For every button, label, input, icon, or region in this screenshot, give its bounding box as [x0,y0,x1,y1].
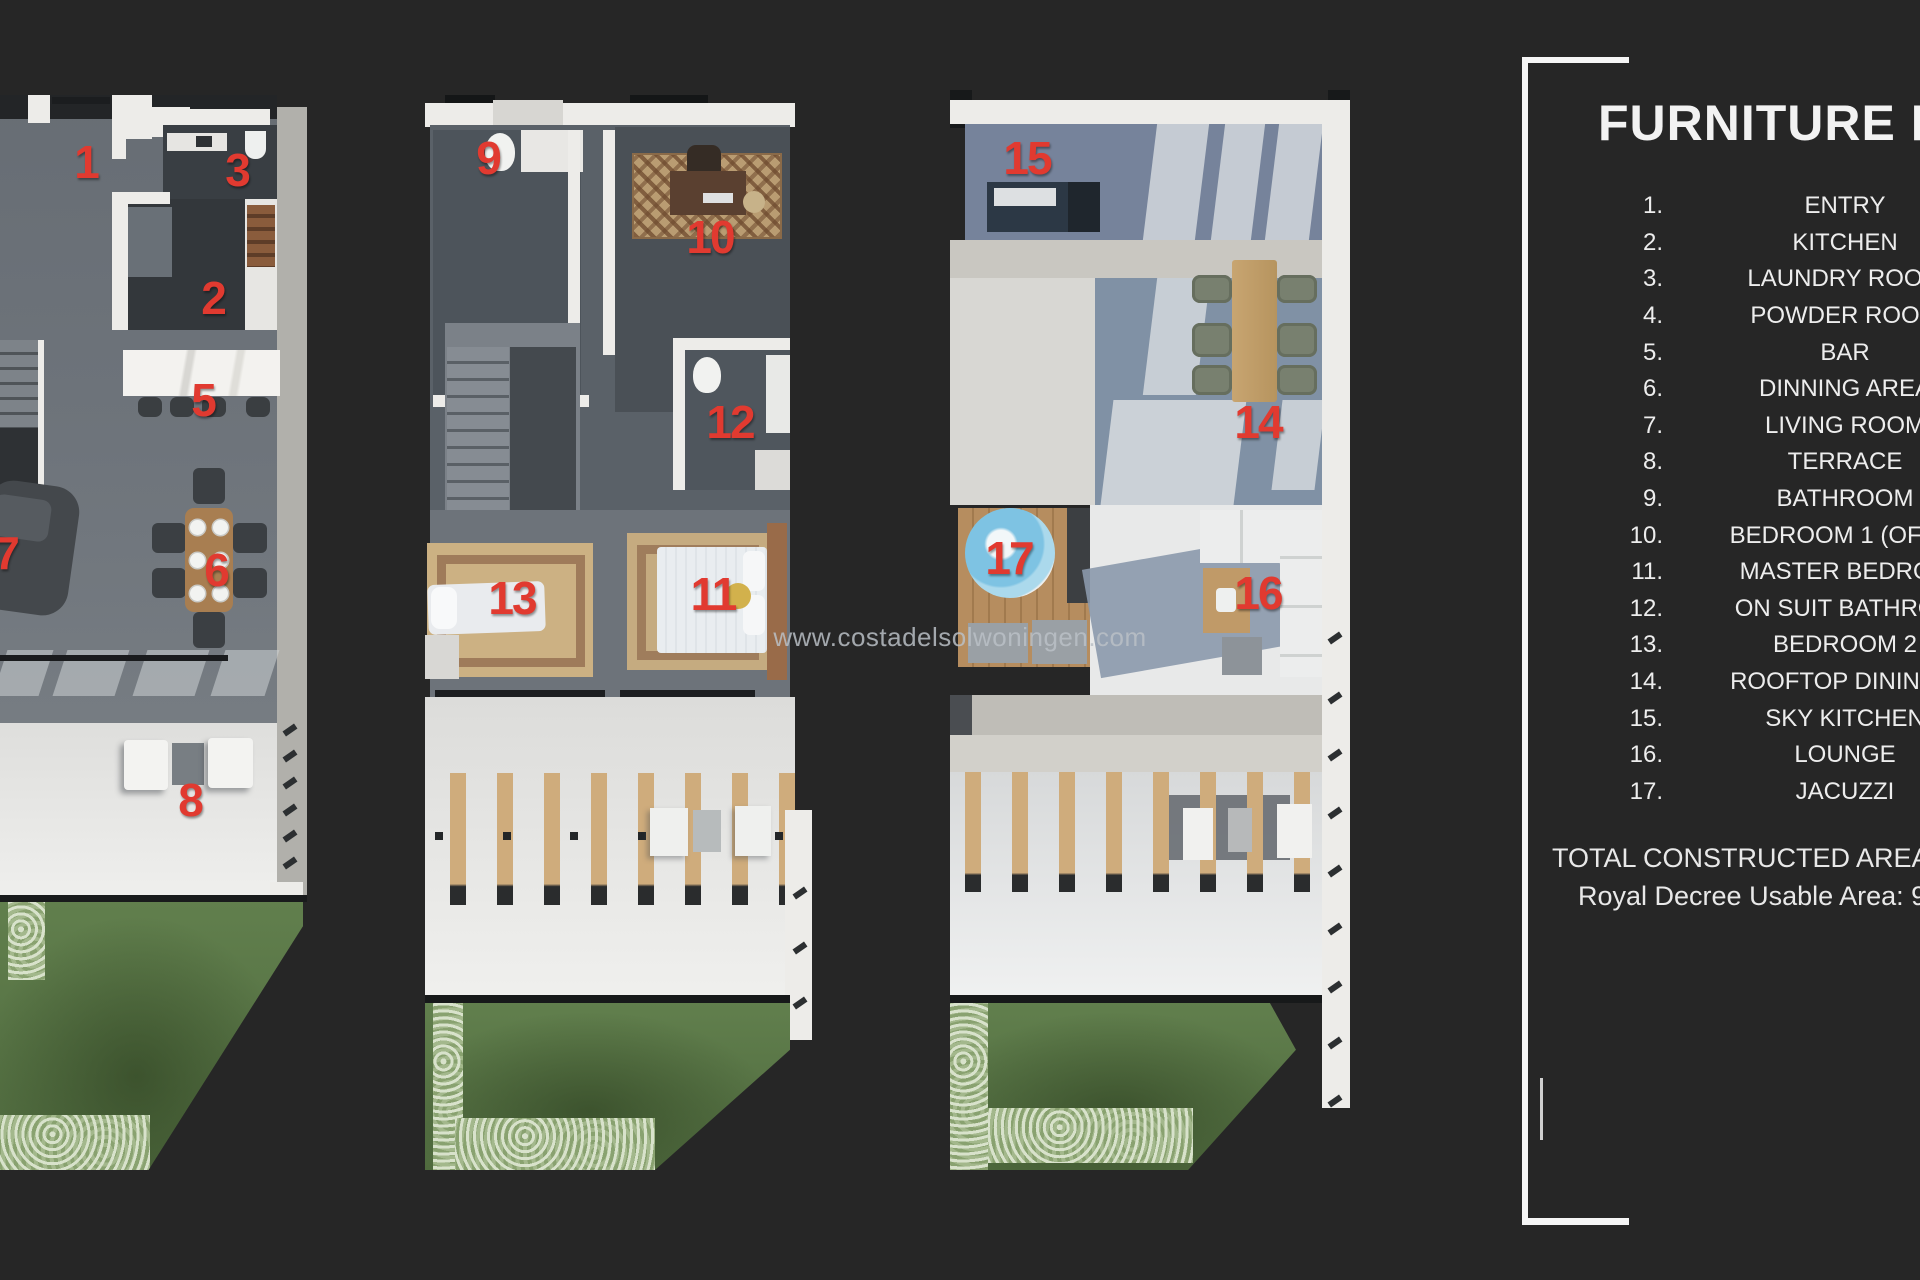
toilet [693,357,721,393]
roof-dining-chair [1192,275,1232,303]
legend-frame-tick [1540,1078,1543,1140]
watermark: www.costadelsolwoningen.com [773,622,1146,653]
room-marker-terrace: 8 [178,777,202,823]
room-marker-dining: 6 [204,547,228,593]
legend-item-1: 1.ENTRY [1510,188,1920,225]
legend-item-number: 3. [1510,265,1663,293]
side-walkway [1322,103,1350,1108]
roof-dining-chair [1192,323,1232,357]
staircase-lower [0,428,40,486]
legend-item-number: 1. [1510,192,1663,220]
legend-item-6: 6.DINNING AREA [1510,371,1920,408]
pouf [743,191,765,213]
room-marker-kitchen: 2 [201,275,225,321]
legend-item-label: JACUZZI [1680,778,1920,806]
balustrade-post [638,832,646,840]
shower-tray [755,450,790,490]
dining-chair [233,568,267,598]
first-floor-plan: 9 10 12 13 11 [425,95,797,1175]
balustrade-post [570,832,578,840]
lounge-sofa-corner [1280,510,1327,677]
legend-item-number: 15. [1510,705,1663,733]
roof-wall-band [950,240,1350,278]
dining-chair [152,568,186,598]
kitchen-island-cabinet [128,207,172,277]
room-marker-skykitchen: 15 [1003,135,1050,181]
garden-wall [425,995,790,1003]
ensuite-wall [673,338,685,490]
legend-item-label: BEDROOM 2 [1680,631,1920,659]
garden [950,1003,1322,1170]
legend-item-label: LOUNGE [1680,741,1920,769]
pergola-slat [1106,772,1122,892]
plate [190,553,205,568]
staircase [0,340,40,428]
legend-item-12: 12.ON SUIT BATHROO [1510,591,1920,628]
legend-item-5: 5.BAR [1510,334,1920,371]
dining-chair [193,612,225,648]
top-wall [950,100,1350,124]
usable-area-text: Royal Decree Usable Area: 9 [1578,881,1920,912]
ottoman [208,738,253,788]
laundry-sink [196,136,212,147]
legend-item-label: BAR [1680,339,1920,367]
ground-floor-plan: 1 3 2 5 6 7 8 [0,95,310,1175]
pillow [431,587,457,629]
sky-kitchen-counter [994,188,1056,206]
garden-wall [950,995,1322,1003]
garden [0,902,303,1170]
room-marker-roofdining: 14 [1234,399,1281,445]
legend-frame-top [1522,57,1629,63]
dining-chair [233,523,267,553]
legend-item-17: 17.JACUZZI [1510,774,1920,811]
legend-item-label: LAUNDRY ROOM [1680,265,1920,293]
legend-list: 1.ENTRY 2.KITCHEN 3.LAUNDRY ROOM 4.POWDE… [1510,188,1920,810]
hedge [950,1003,988,1170]
pergola-slat [1153,772,1169,892]
legend-item-4: 4.POWDER ROOM [1510,298,1920,335]
legend-item-16: 16.LOUNGE [1510,737,1920,774]
corridor-wall [603,130,615,355]
vanity [766,355,790,433]
plate [213,520,228,535]
legend-item-7: 7.LIVING ROOM [1510,408,1920,445]
hedge [0,1115,150,1170]
wall-notch [950,695,972,735]
legend-item-15: 15.SKY KITCHEN [1510,700,1920,737]
room-marker-bar: 5 [191,377,215,423]
legend-item-8: 8.TERRACE [1510,444,1920,481]
roof-wall-band [950,695,1350,735]
roof-patio [950,278,1095,505]
legend-item-number: 10. [1510,522,1663,550]
headboard [767,523,787,680]
garden-wall [0,895,307,902]
total-area-text: TOTAL CONSTRUCTED AREA: 1 [1552,843,1920,874]
legend-item-number: 6. [1510,375,1663,403]
legend-item-label: BATHROOM [1680,485,1920,513]
pergola-slat [450,773,466,905]
pergola-slat [591,773,607,905]
pergola-slat [1059,772,1075,892]
balustrade-post [503,832,511,840]
legend-item-label: KITCHEN [1680,229,1920,257]
roof-wall-band [950,735,1350,772]
balcony-seat [650,808,688,856]
legend-item-number: 7. [1510,412,1663,440]
pergola-slat [965,772,981,892]
hedge [988,1108,1193,1163]
legend-item-label: POWDER ROOM [1680,302,1920,330]
legend-item-number: 9. [1510,485,1663,513]
terrace-seat [1277,804,1312,858]
sliding-door [0,655,228,661]
legend-item-number: 14. [1510,668,1663,696]
legend-item-label: ON SUIT BATHROO [1680,595,1920,623]
furniture-plan-poster: { "colors": { "background": "#262626", "… [0,0,1920,1280]
pergola-slat [1012,772,1028,892]
room-marker-bathroom: 9 [476,135,500,181]
legend-item-9: 9.BATHROOM [1510,481,1920,518]
room-marker-bedroom1: 10 [686,214,733,260]
balustrade-post [435,832,443,840]
dining-chair [193,468,225,504]
legend-item-number: 12. [1510,595,1663,623]
legend-item-2: 2.KITCHEN [1510,225,1920,262]
pergola-slat [544,773,560,905]
sliding-door [435,690,605,697]
roof-dining-table [1232,260,1277,402]
legend-item-number: 5. [1510,339,1663,367]
roof-dining-chair [1277,365,1317,395]
room-marker-laundry: 3 [225,147,249,193]
legend-item-number: 2. [1510,229,1663,257]
balustrade-post [775,832,783,840]
sky-kitchen-appliance [1068,182,1100,232]
sunlight-patch [1101,400,1247,505]
legend-item-10: 10.BEDROOM 1 (OFFIC [1510,517,1920,554]
legend-item-3: 3.LAUNDRY ROOM [1510,261,1920,298]
room-marker-living: 7 [0,530,18,576]
wall-segment [112,97,126,159]
wall-segment [28,95,50,123]
legend-item-11: 11.MASTER BEDROO [1510,554,1920,591]
room-marker-bedroom2: 13 [488,575,535,621]
room-marker-entry: 1 [74,139,98,185]
legend-item-number: 11. [1510,558,1663,586]
top-wall [425,103,795,127]
nightstand [425,635,459,679]
room-marker-lounge: 16 [1234,570,1281,616]
plate [190,586,205,601]
balcony-seat [735,806,771,856]
hedge [455,1118,655,1170]
legend-item-number: 16. [1510,741,1663,769]
room-marker-jacuzzi: 17 [985,535,1032,581]
legend-item-label: MASTER BEDROO [1680,558,1920,586]
stair-wall [38,340,44,486]
terrace-table [1228,808,1252,852]
bar-stool [246,397,270,417]
sliding-door [620,690,755,697]
terrace-seat [1183,808,1213,860]
lounge-ottoman [1222,637,1262,675]
legend-item-label: LIVING ROOM [1680,412,1920,440]
legend-item-label: ENTRY [1680,192,1920,220]
plate [190,520,205,535]
legend-item-13: 13.BEDROOM 2 [1510,627,1920,664]
legend-frame-bottom [1522,1218,1629,1225]
pantry-shelves [247,205,275,267]
legend-item-number: 13. [1510,631,1663,659]
legend-item-label: DINNING AREA [1680,375,1920,403]
legend-title: FURNITURE PL [1598,94,1920,152]
legend-item-label: BEDROOM 1 (OFFIC [1680,522,1920,550]
dining-chair [152,523,186,553]
hedge [8,902,45,980]
legend-item-label: SKY KITCHEN [1680,705,1920,733]
legend-item-number: 8. [1510,448,1663,476]
legend-item-14: 14.ROOFTOP DINING A [1510,664,1920,701]
table-decor [1216,588,1236,612]
roof-dining-chair [1192,365,1232,395]
room-marker-master: 11 [691,571,736,617]
desk-monitor [703,193,733,203]
entry-door-gap [52,97,110,104]
ensuite-wall [673,338,790,350]
legend-item-number: 17. [1510,778,1663,806]
legend-item-label: ROOFTOP DINING A [1680,668,1920,696]
legend-item-label: TERRACE [1680,448,1920,476]
garden [425,1003,790,1170]
wall-segment [112,199,128,330]
roof-dining-chair [1277,323,1317,357]
ottoman [124,740,168,790]
bar-stool [138,397,162,417]
balcony-table [693,810,721,852]
legend-item-number: 4. [1510,302,1663,330]
roof-dining-chair [1277,275,1317,303]
room-marker-ensuite: 12 [706,399,753,445]
